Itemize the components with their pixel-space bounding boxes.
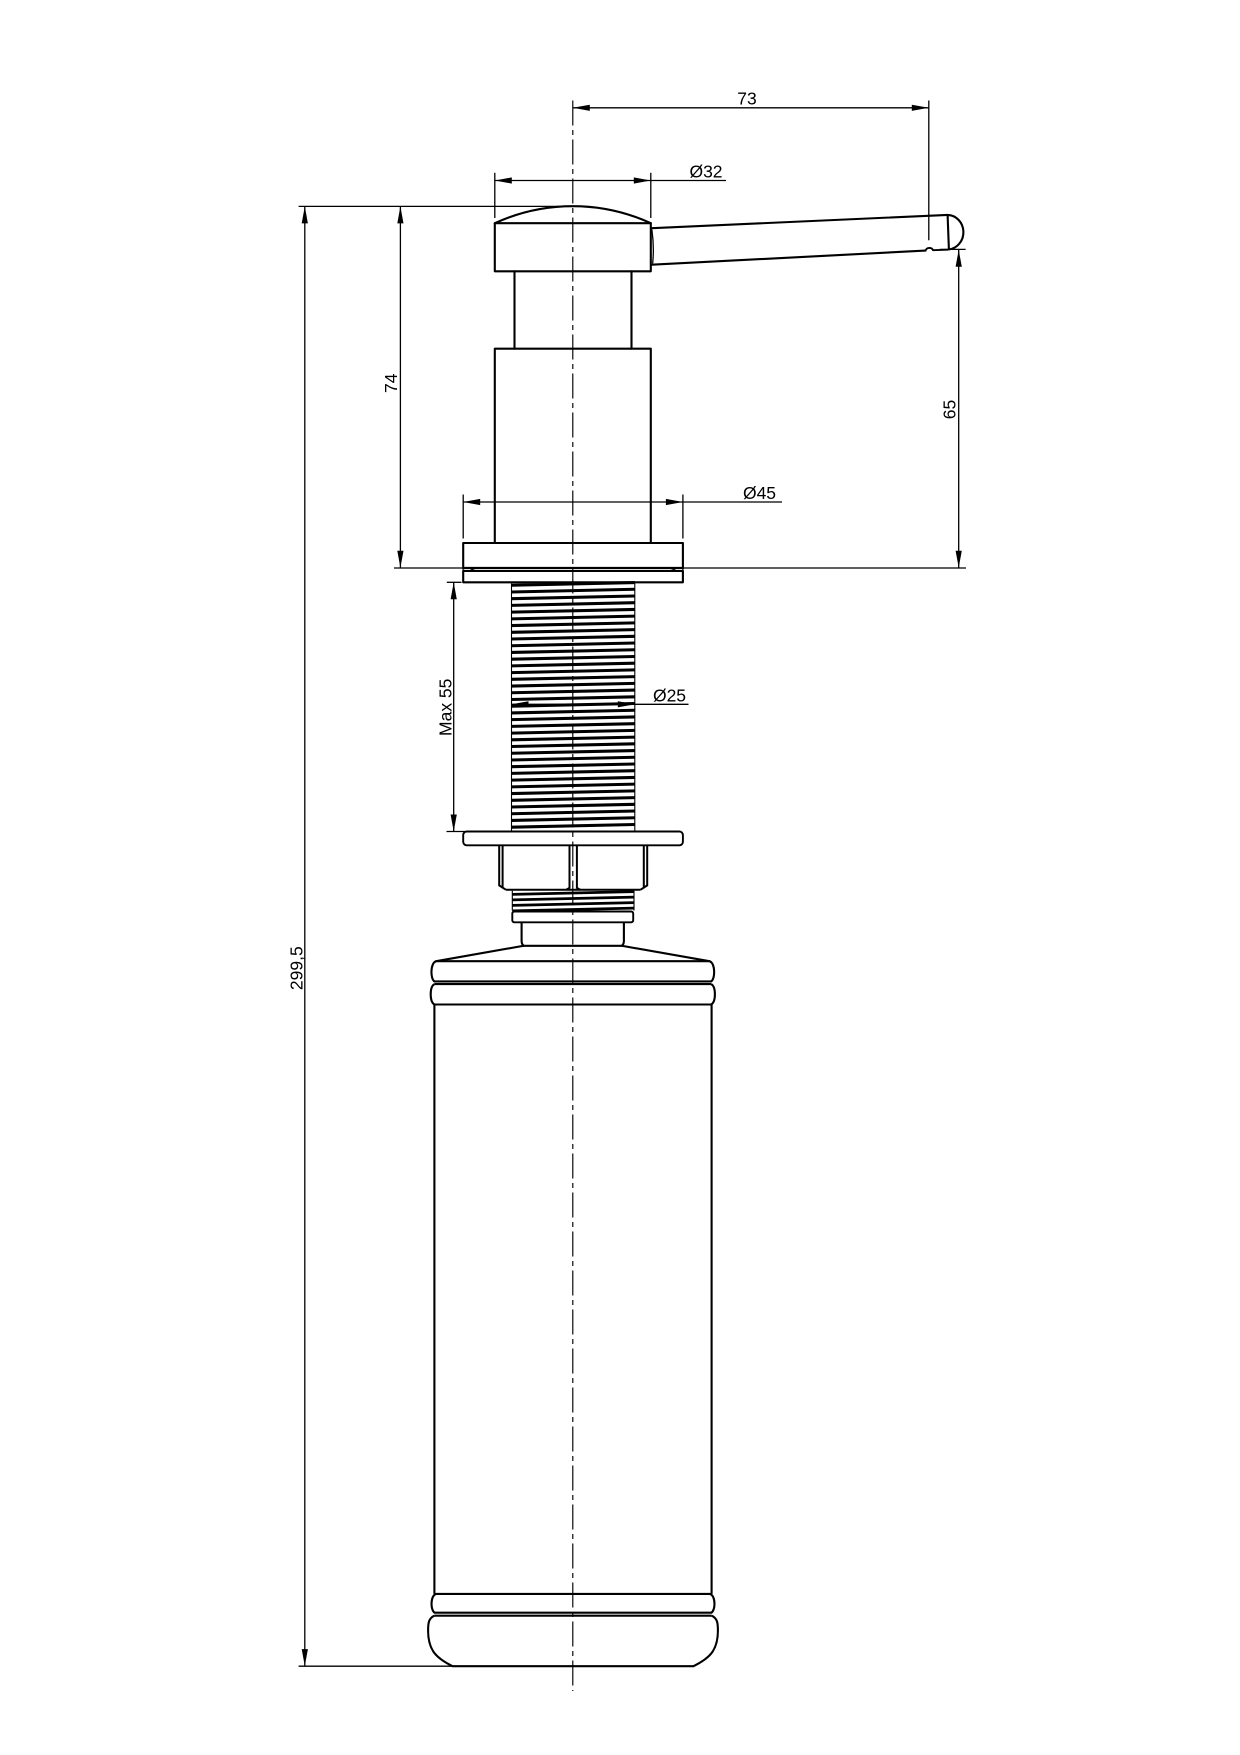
svg-text:65: 65 — [940, 400, 960, 419]
svg-text:Max 55: Max 55 — [436, 679, 456, 736]
svg-text:74: 74 — [381, 373, 401, 393]
svg-text:73: 73 — [737, 89, 756, 109]
svg-text:299,5: 299,5 — [286, 946, 306, 990]
svg-text:Ø25: Ø25 — [653, 686, 686, 706]
svg-text:Ø45: Ø45 — [743, 483, 776, 503]
svg-text:Ø32: Ø32 — [689, 162, 722, 182]
